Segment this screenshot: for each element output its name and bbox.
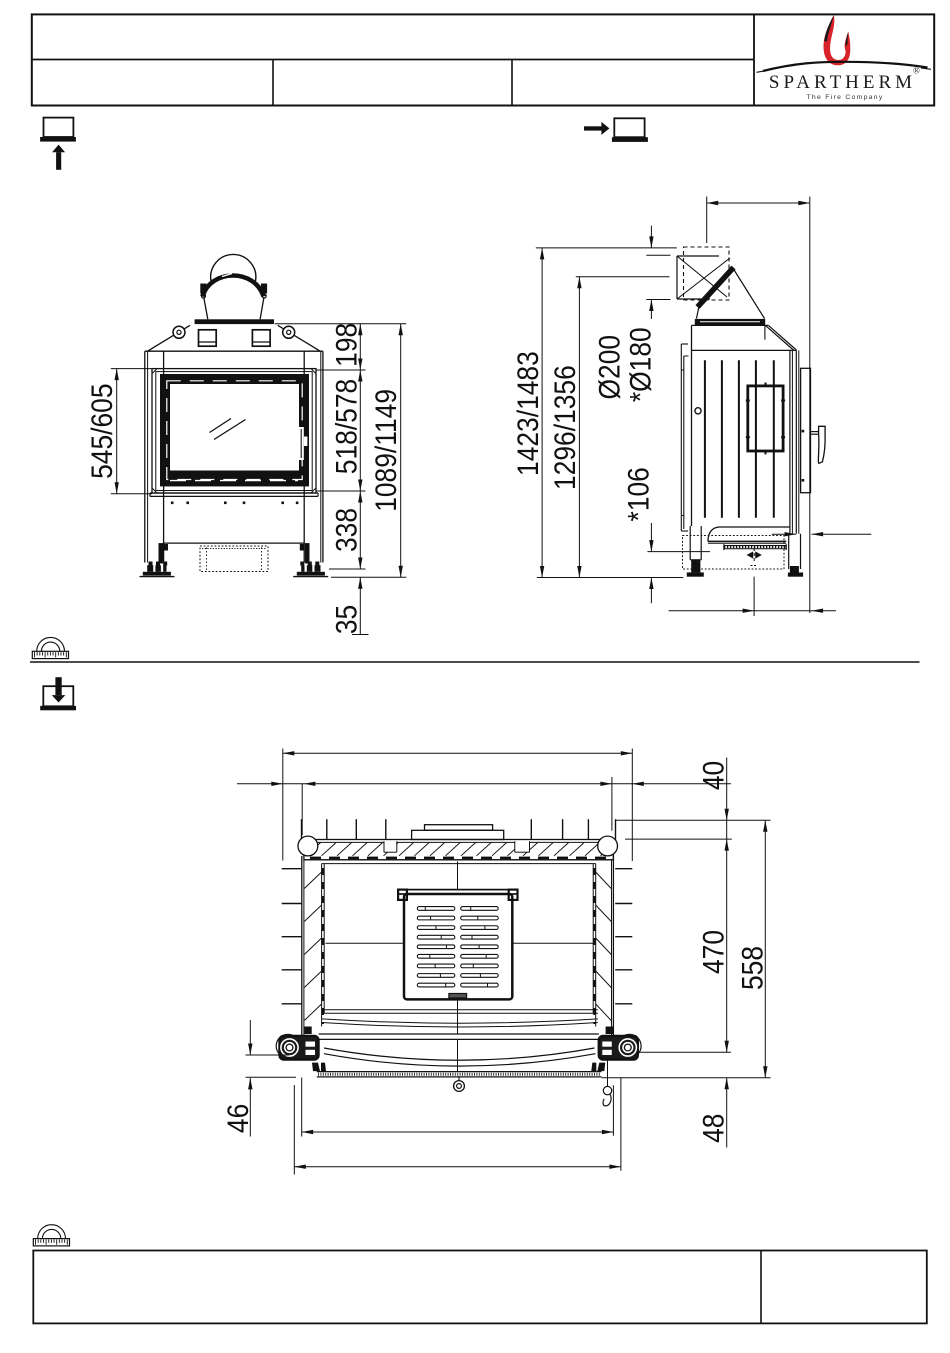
svg-text:Ø200: Ø200 [592,335,626,400]
svg-text:40: 40 [696,761,730,790]
svg-text:35: 35 [329,605,363,634]
svg-text:48: 48 [696,1114,730,1143]
svg-text:338: 338 [329,508,363,552]
svg-text:518/578: 518/578 [329,379,363,474]
svg-text:1089/1149: 1089/1149 [369,389,403,512]
svg-text:1423/1483: 1423/1483 [510,351,544,476]
svg-text:198: 198 [329,323,363,367]
svg-text:SPARTHERM: SPARTHERM [769,72,916,93]
svg-text:*106: *106 [621,467,655,521]
svg-text:470: 470 [696,930,730,974]
svg-text:®: ® [913,66,920,76]
svg-text:1296/1356: 1296/1356 [548,365,582,490]
svg-text:*Ø180: *Ø180 [623,327,657,402]
svg-text:46: 46 [220,1104,254,1133]
svg-text:The Fire Company: The Fire Company [806,94,883,101]
svg-text:545/605: 545/605 [85,383,119,478]
svg-text:558: 558 [735,946,769,990]
